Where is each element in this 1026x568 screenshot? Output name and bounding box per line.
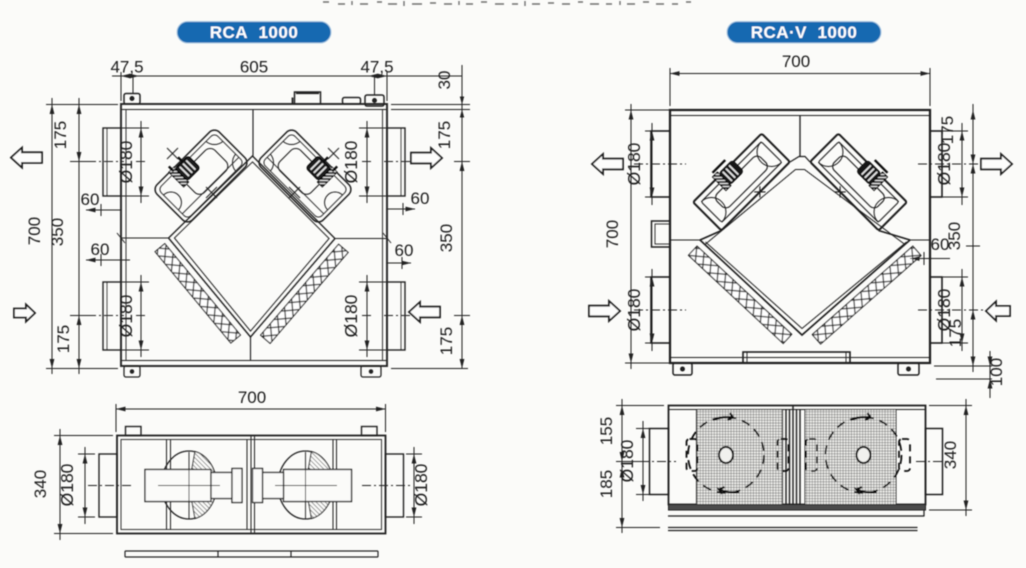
svg-text:60: 60	[411, 189, 430, 208]
svg-text:60: 60	[931, 235, 950, 254]
svg-text:47,5: 47,5	[360, 58, 393, 77]
svg-text:Ø180: Ø180	[116, 294, 136, 337]
svg-text:RCA·V 1000: RCA·V 1000	[751, 23, 858, 42]
svg-text:350: 350	[437, 224, 456, 252]
svg-text:605: 605	[240, 58, 268, 77]
svg-text:Ø180: Ø180	[116, 140, 136, 183]
svg-text:47,5: 47,5	[110, 58, 143, 77]
svg-text:Ø180: Ø180	[934, 288, 954, 331]
svg-text:RCA 1000: RCA 1000	[210, 23, 299, 42]
svg-text:185: 185	[597, 470, 616, 498]
svg-text:340: 340	[941, 441, 960, 469]
svg-text:700: 700	[782, 52, 810, 71]
svg-text:340: 340	[31, 470, 50, 498]
svg-text:350: 350	[48, 218, 67, 246]
svg-text:60: 60	[81, 190, 100, 209]
svg-text:Ø180: Ø180	[411, 463, 431, 506]
svg-text:175: 175	[938, 116, 957, 144]
svg-text:175: 175	[54, 325, 73, 353]
svg-text:Ø180: Ø180	[57, 463, 77, 506]
svg-text:155: 155	[597, 417, 616, 445]
svg-text:Ø180: Ø180	[341, 294, 361, 337]
svg-text:175: 175	[51, 121, 70, 149]
svg-text:Ø180: Ø180	[934, 142, 954, 185]
svg-text:Ø180: Ø180	[341, 140, 361, 183]
svg-text:100: 100	[987, 358, 1006, 386]
svg-text:175: 175	[437, 327, 456, 355]
svg-text:30: 30	[435, 71, 454, 90]
svg-text:700: 700	[603, 220, 622, 248]
svg-text:700: 700	[238, 388, 266, 407]
svg-text:60: 60	[91, 240, 110, 259]
svg-text:175: 175	[435, 121, 454, 149]
svg-text:Ø180: Ø180	[624, 288, 644, 331]
svg-text:60: 60	[395, 241, 414, 260]
svg-text:700: 700	[25, 217, 44, 245]
svg-text:Ø180: Ø180	[617, 439, 637, 482]
svg-text:Ø180: Ø180	[624, 142, 644, 185]
